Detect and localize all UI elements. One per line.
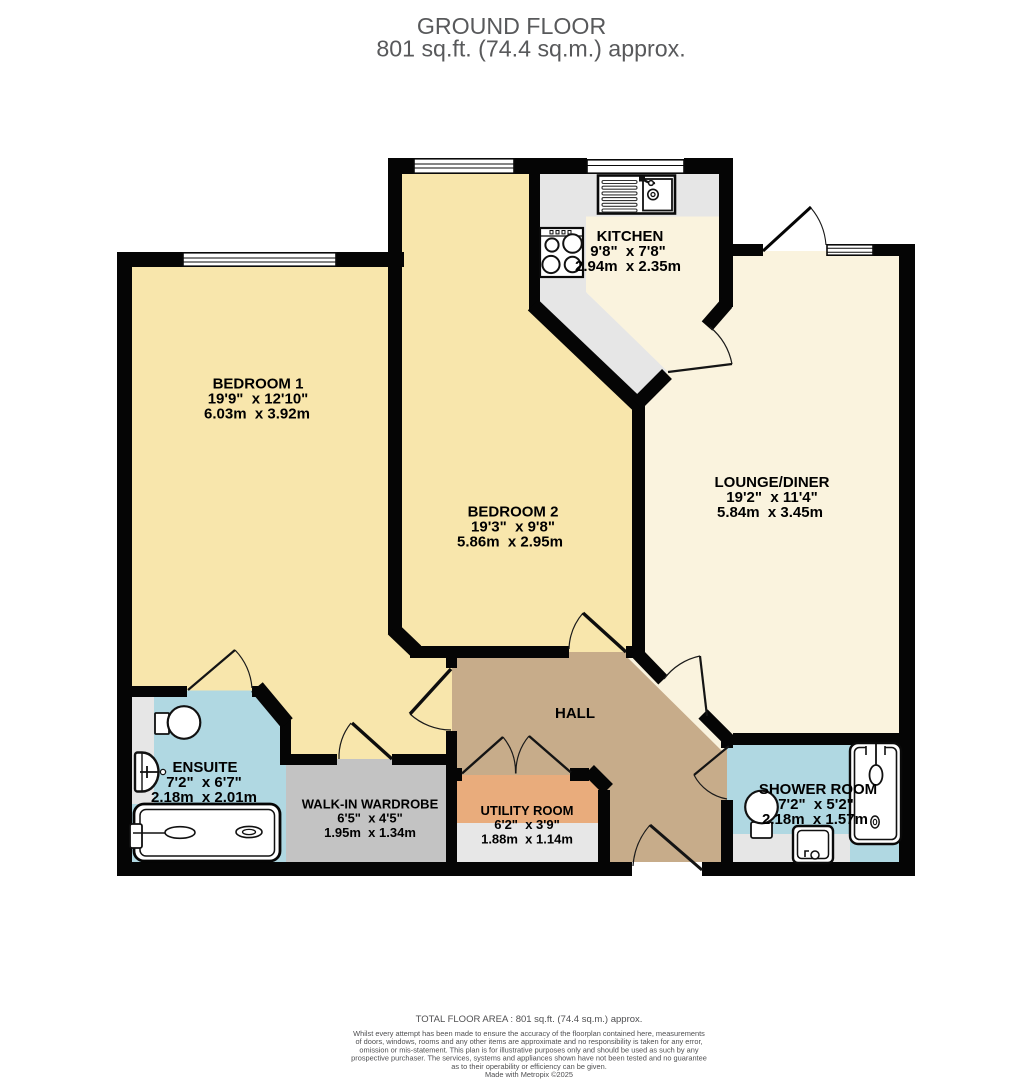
svg-text:5.86m x 2.95m: 5.86m x 2.95m xyxy=(457,533,563,550)
svg-text:2.18m x 2.01m: 2.18m x 2.01m xyxy=(151,789,257,806)
svg-text:801 sq.ft. (74.4 sq.m.) approx: 801 sq.ft. (74.4 sq.m.) approx. xyxy=(376,36,685,62)
svg-text:TOTAL FLOOR AREA : 801 sq.ft.: TOTAL FLOOR AREA : 801 sq.ft. (74.4 sq.m… xyxy=(416,1014,643,1025)
svg-text:HALL: HALL xyxy=(555,705,595,722)
svg-text:WALK-IN WARDROBE: WALK-IN WARDROBE xyxy=(302,797,439,812)
svg-text:6'5" x 4'5": 6'5" x 4'5" xyxy=(337,811,403,826)
svg-text:2.94m x 2.35m: 2.94m x 2.35m xyxy=(575,258,681,275)
svg-text:1.95m x 1.34m: 1.95m x 1.34m xyxy=(324,825,416,840)
svg-text:Made with Metropix ©2025: Made with Metropix ©2025 xyxy=(485,1070,573,1079)
svg-text:6'2" x 3'9": 6'2" x 3'9" xyxy=(494,817,560,832)
svg-text:2.18m x 1.57m: 2.18m x 1.57m xyxy=(762,811,868,828)
svg-text:5.84m x 3.45m: 5.84m x 3.45m xyxy=(717,504,823,521)
svg-text:1.88m x 1.14m: 1.88m x 1.14m xyxy=(481,832,573,847)
svg-text:UTILITY ROOM: UTILITY ROOM xyxy=(481,803,574,818)
svg-text:6.03m x 3.92m: 6.03m x 3.92m xyxy=(204,406,310,423)
